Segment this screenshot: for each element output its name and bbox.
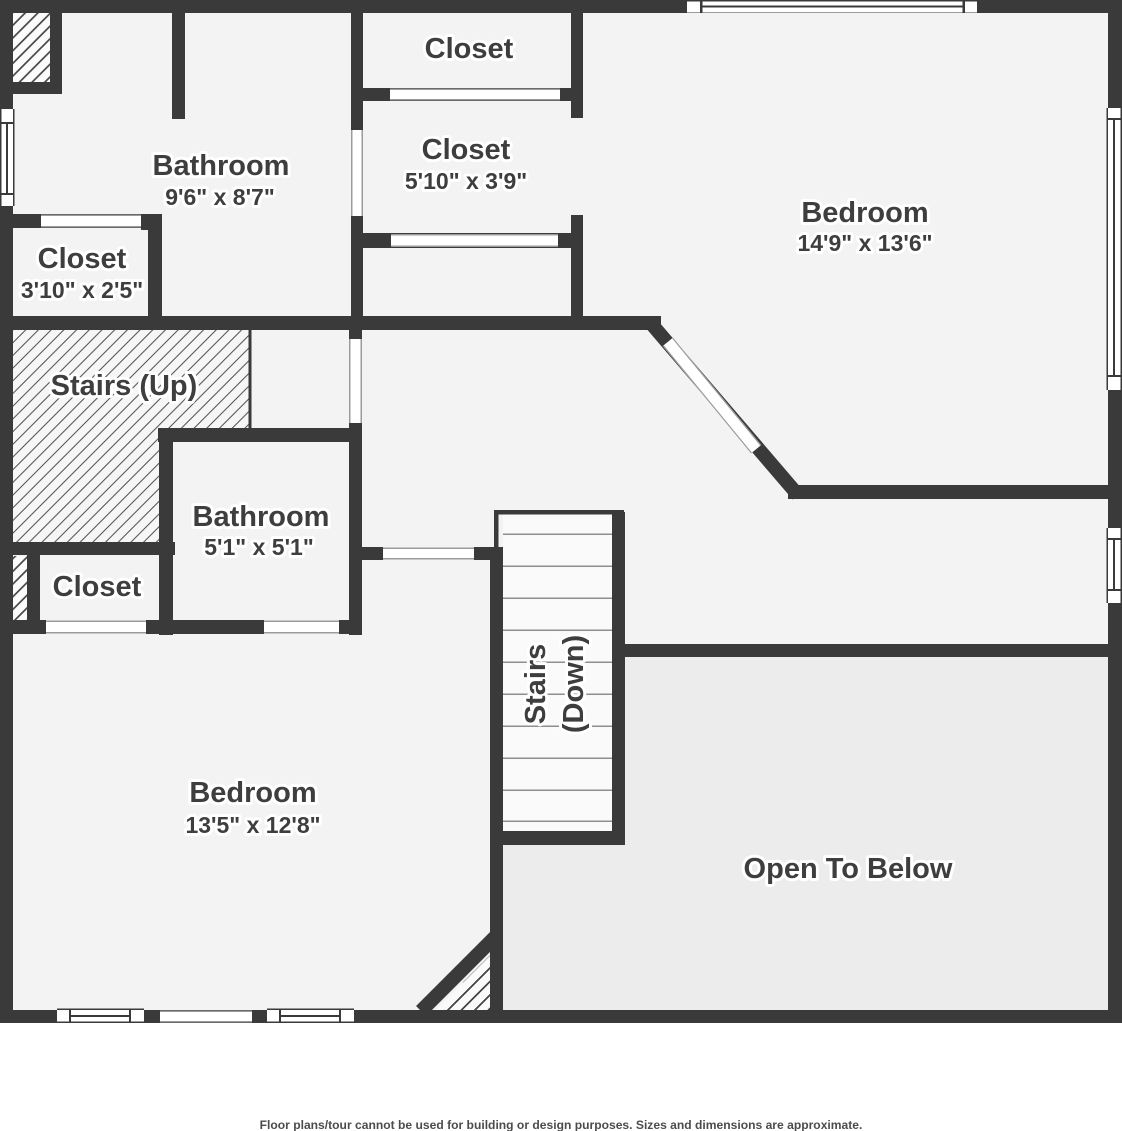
svg-text:Open To Below: Open To Below (744, 853, 953, 885)
svg-text:Bedroom: Bedroom (189, 777, 316, 809)
svg-text:Closet: Closet (53, 571, 142, 603)
svg-text:14'9" x 13'6": 14'9" x 13'6" (797, 230, 932, 256)
svg-text:5'10" x 3'9": 5'10" x 3'9" (405, 168, 527, 194)
svg-text:3'10" x 2'5": 3'10" x 2'5" (21, 277, 143, 303)
svg-text:Closet: Closet (422, 134, 511, 166)
svg-text:5'1" x 5'1": 5'1" x 5'1" (204, 534, 314, 560)
svg-text:(Down): (Down) (558, 635, 590, 733)
svg-text:Bathroom: Bathroom (193, 501, 330, 533)
svg-text:Stairs: Stairs (520, 644, 552, 725)
svg-text:9'6" x 8'7": 9'6" x 8'7" (165, 184, 275, 210)
svg-text:13'5" x 12'8": 13'5" x 12'8" (185, 812, 320, 838)
svg-text:Bathroom: Bathroom (153, 150, 290, 182)
svg-text:Closet: Closet (38, 243, 127, 275)
svg-text:Stairs (Up): Stairs (Up) (51, 370, 198, 402)
svg-text:Closet: Closet (425, 33, 514, 65)
svg-text:Floor plans/tour cannot be use: Floor plans/tour cannot be used for buil… (260, 1118, 863, 1131)
svg-text:Bedroom: Bedroom (801, 197, 928, 229)
